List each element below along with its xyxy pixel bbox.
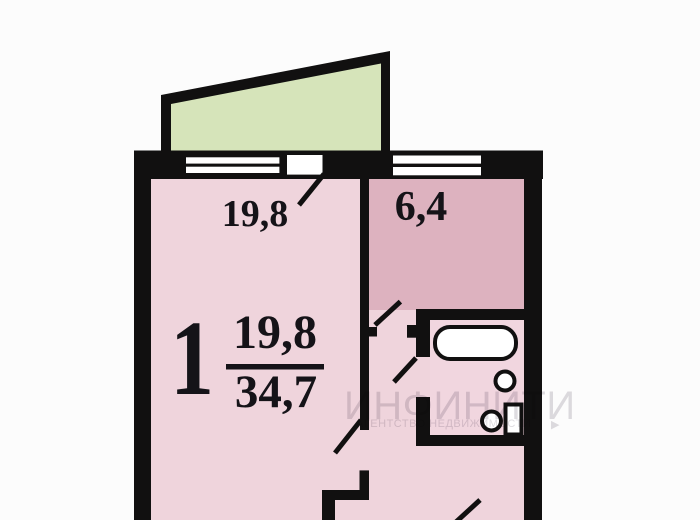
svg-text:1: 1 xyxy=(170,300,214,418)
svg-text:6,4: 6,4 xyxy=(395,184,448,230)
svg-text:34,7: 34,7 xyxy=(235,366,317,418)
svg-text:19,8: 19,8 xyxy=(222,193,289,235)
svg-text:19,8: 19,8 xyxy=(233,306,317,359)
